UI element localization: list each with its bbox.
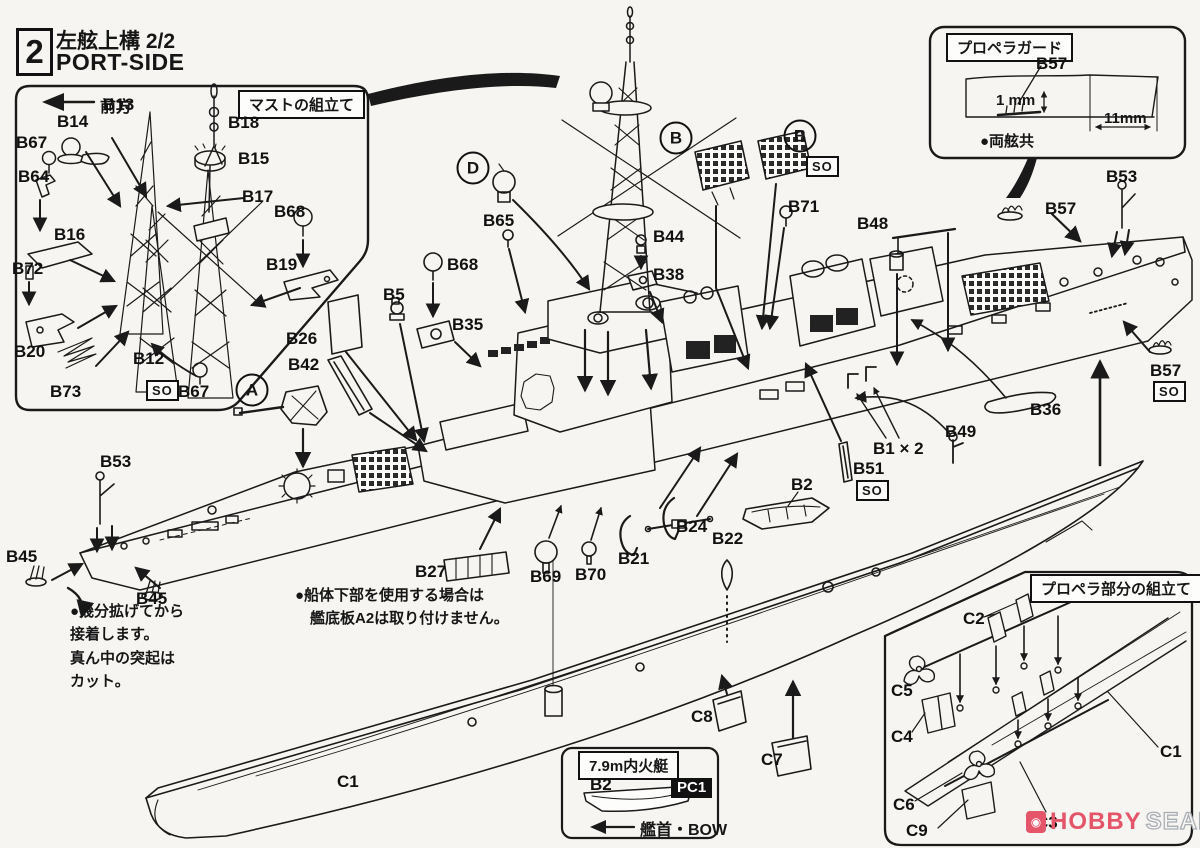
part-label-B64: B64 [18, 168, 49, 185]
part-label-C4: C4 [891, 728, 913, 745]
part-label-B14: B14 [57, 113, 88, 130]
watermark-suffix: SEARCH [1146, 808, 1200, 836]
part-label-B73: B73 [50, 383, 81, 400]
part-label-B13: B13 [103, 96, 134, 113]
part-label-B57: B57 [1036, 55, 1067, 72]
part-label-C9: C9 [906, 822, 928, 839]
part-label-C6: C6 [893, 796, 915, 813]
hobbysearch-logo-icon: ◉ [1026, 811, 1046, 833]
part-label-B71: B71 [788, 198, 819, 215]
part-label-C2: C2 [963, 610, 985, 627]
line-art [0, 0, 1200, 848]
part-label-B5: B5 [383, 286, 405, 303]
part-label-B44: B44 [653, 228, 684, 245]
dim-1mm: 1 mm [996, 92, 1035, 109]
part-label-C5: C5 [891, 682, 913, 699]
so-tag: SO [856, 480, 889, 501]
assembly-ref-D: D [457, 152, 490, 185]
part-label-C1: C1 [337, 773, 359, 790]
part-label-B57: B57 [1045, 200, 1076, 217]
part-label-B72: B72 [12, 260, 43, 277]
part-label-B51: B51 [853, 460, 884, 477]
part-label-B20: B20 [14, 343, 45, 360]
part-label-C1: C1 [1160, 743, 1182, 760]
instruction-sheet: 2 左舷上構 2/2 PORT-SIDE マストの組立て 前方 プロペラガード … [0, 0, 1200, 848]
watermark: ◉ HOBBY SEARCH [1026, 808, 1200, 836]
watermark-brand: HOBBY [1050, 808, 1142, 836]
part-label-B27: B27 [415, 563, 446, 580]
part-label-B1×2: B1 × 2 [873, 440, 924, 457]
part-label-B36: B36 [1030, 401, 1061, 418]
part-label-B69: B69 [530, 568, 561, 585]
part-label-B53: B53 [100, 453, 131, 470]
part-label-B18: B18 [228, 114, 259, 131]
part-label-B21: B21 [618, 550, 649, 567]
part-label-B48: B48 [857, 215, 888, 232]
part-label-B57: B57 [1150, 362, 1181, 379]
assembly-ref-B: B [784, 120, 817, 153]
hull-bottom-note: ●船体下部を使用する場合は 艦底板A2は取り付けません。 [295, 584, 509, 631]
so-tag: SO [1153, 381, 1186, 402]
part-label-C7: C7 [761, 751, 783, 768]
part-label-B24: B24 [676, 518, 707, 535]
paint-code-badge: PC1 [671, 778, 712, 798]
assembly-ref-A: A [236, 374, 269, 407]
part-label-B42: B42 [288, 356, 319, 373]
assembly-ref-B: B [660, 122, 693, 155]
propeller-inset-drawing [885, 572, 1192, 845]
part-label-C8: C8 [691, 708, 713, 725]
part-label-B35: B35 [452, 316, 483, 333]
bow-attach-note: ●幾分拡げてから接着します。真ん中の突起はカット。 [70, 600, 184, 693]
page-subtitle: PORT-SIDE [56, 49, 184, 76]
mast-callout-swoosh [368, 73, 560, 106]
part-label-B45: B45 [136, 590, 167, 607]
part-label-B45: B45 [6, 548, 37, 565]
part-label-B15: B15 [238, 150, 269, 167]
part-label-B65: B65 [483, 212, 514, 229]
part-label-B17: B17 [242, 188, 273, 205]
so-tag: SO [806, 156, 839, 177]
part-label-B12: B12 [133, 350, 164, 367]
part-label-B49: B49 [945, 423, 976, 440]
part-label-B68: B68 [447, 256, 478, 273]
bow-direction-label: 艦首・BOW [640, 816, 727, 840]
part-label-B68: B68 [274, 203, 305, 220]
part-label-B22: B22 [712, 530, 743, 547]
both-sides-note: ●両舷共 [980, 130, 1034, 151]
part-label-B2: B2 [791, 476, 813, 493]
so-tag: SO [146, 380, 179, 401]
part-label-B38: B38 [653, 266, 684, 283]
part-label-B70: B70 [575, 566, 606, 583]
part-label-B53: B53 [1106, 168, 1137, 185]
dim-11mm: 11mm [1104, 110, 1147, 127]
part-label-B67: B67 [16, 134, 47, 151]
part-label-B26: B26 [286, 330, 317, 347]
part-label-B16: B16 [54, 226, 85, 243]
part-label-B67: B67 [178, 383, 209, 400]
step-number: 2 [16, 28, 53, 76]
part-label-B19: B19 [266, 256, 297, 273]
propeller-inset-title: プロペラ部分の組立て [1030, 574, 1200, 603]
part-label-B2: B2 [590, 776, 612, 793]
